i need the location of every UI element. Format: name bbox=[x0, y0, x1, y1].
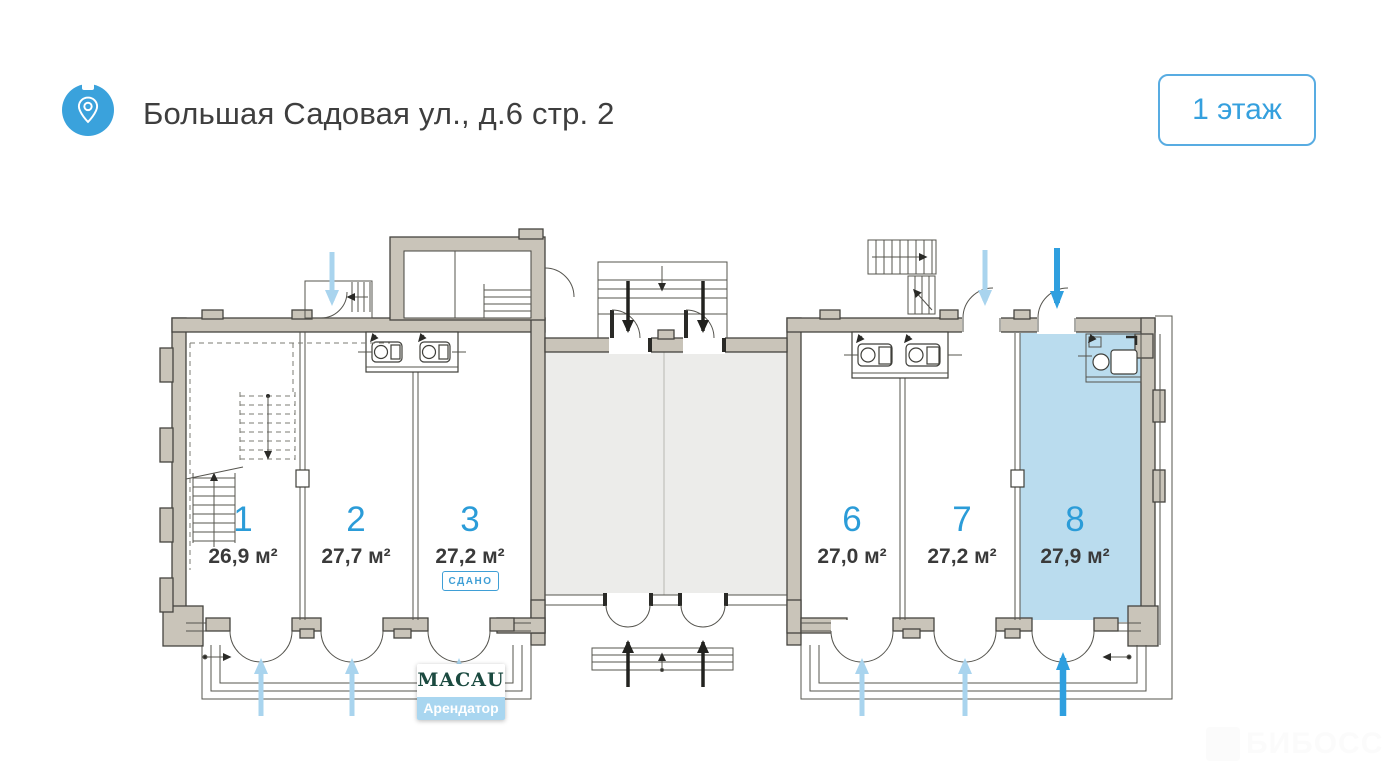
room-3-status-badge: СДАНО bbox=[442, 571, 499, 591]
tenant-card[interactable]: MACAU Арендатор bbox=[417, 664, 505, 720]
entrance-center bbox=[598, 262, 727, 338]
hall-fill bbox=[545, 352, 787, 595]
floor-plan: 1 26,9 м² 2 27,7 м² 3 27,2 м² 6 27,0 м² … bbox=[0, 0, 1384, 767]
room-2[interactable] bbox=[305, 332, 413, 620]
room-6[interactable] bbox=[801, 332, 900, 620]
watermark: БИБОСС bbox=[1206, 727, 1383, 761]
room-1[interactable] bbox=[186, 332, 300, 620]
room-7[interactable] bbox=[905, 332, 1015, 620]
entrance-right bbox=[868, 240, 1068, 318]
room-8[interactable] bbox=[1020, 332, 1141, 620]
tenant-label: Арендатор bbox=[417, 697, 505, 720]
tenant-name: MACAU bbox=[417, 664, 505, 697]
watermark-text: БИБОСС bbox=[1246, 727, 1383, 761]
page: Большая Садовая ул., д.6 стр. 2 1 этаж bbox=[0, 0, 1384, 767]
watermark-logo-icon bbox=[1206, 727, 1240, 761]
